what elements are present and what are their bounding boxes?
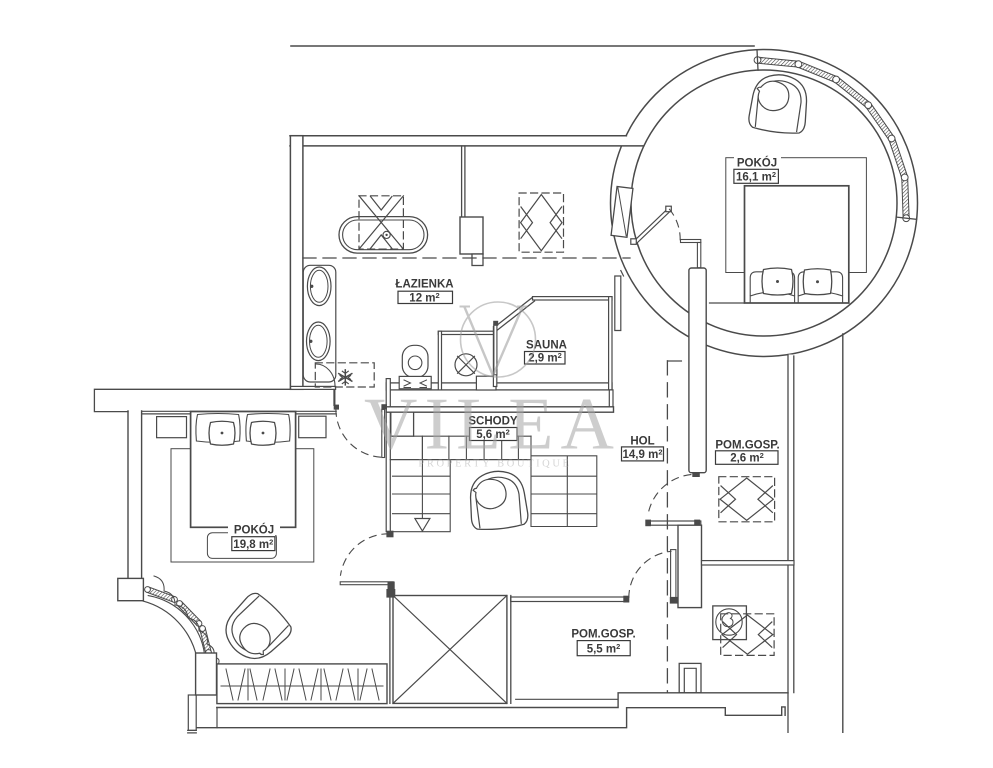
svg-text:POKÓJ: POKÓJ	[737, 157, 777, 170]
svg-text:VILEA: VILEA	[364, 384, 621, 466]
svg-text:5,5 m2: 5,5 m2	[587, 642, 621, 656]
svg-text:HOL: HOL	[630, 435, 654, 447]
svg-text:2,6 m2: 2,6 m2	[730, 451, 764, 465]
svg-text:12 m2: 12 m2	[409, 291, 439, 305]
svg-text:POM.GOSP.: POM.GOSP.	[715, 440, 779, 452]
svg-text:16,1 m2: 16,1 m2	[736, 170, 776, 184]
svg-text:SAUNA: SAUNA	[526, 340, 567, 352]
svg-text:19,8 m2: 19,8 m2	[233, 537, 273, 551]
svg-text:POM.GOSP.: POM.GOSP.	[571, 628, 635, 640]
svg-text:PROPERTY BOUTIQUE: PROPERTY BOUTIQUE	[418, 459, 571, 470]
svg-text:ŁAZIENKA: ŁAZIENKA	[395, 279, 453, 291]
svg-text:POKÓJ: POKÓJ	[234, 524, 274, 537]
svg-text:14,9 m2: 14,9 m2	[623, 447, 663, 461]
